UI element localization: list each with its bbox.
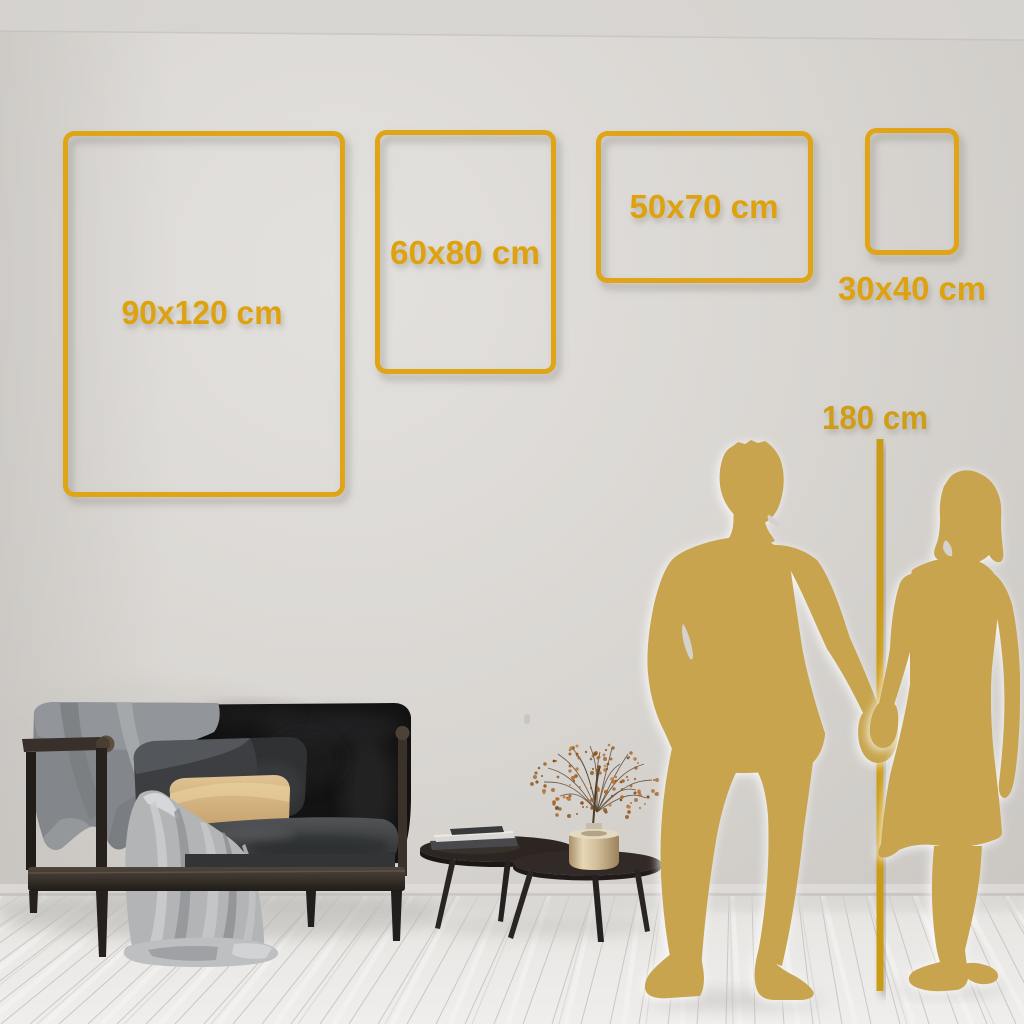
svg-text:60x80 cm: 60x80 cm — [390, 234, 540, 271]
svg-text:50x70 cm: 50x70 cm — [630, 188, 779, 225]
svg-text:30x40 cm: 30x40 cm — [838, 270, 986, 307]
svg-text:180 cm: 180 cm — [822, 399, 928, 436]
svg-text:90x120 cm: 90x120 cm — [122, 294, 283, 331]
